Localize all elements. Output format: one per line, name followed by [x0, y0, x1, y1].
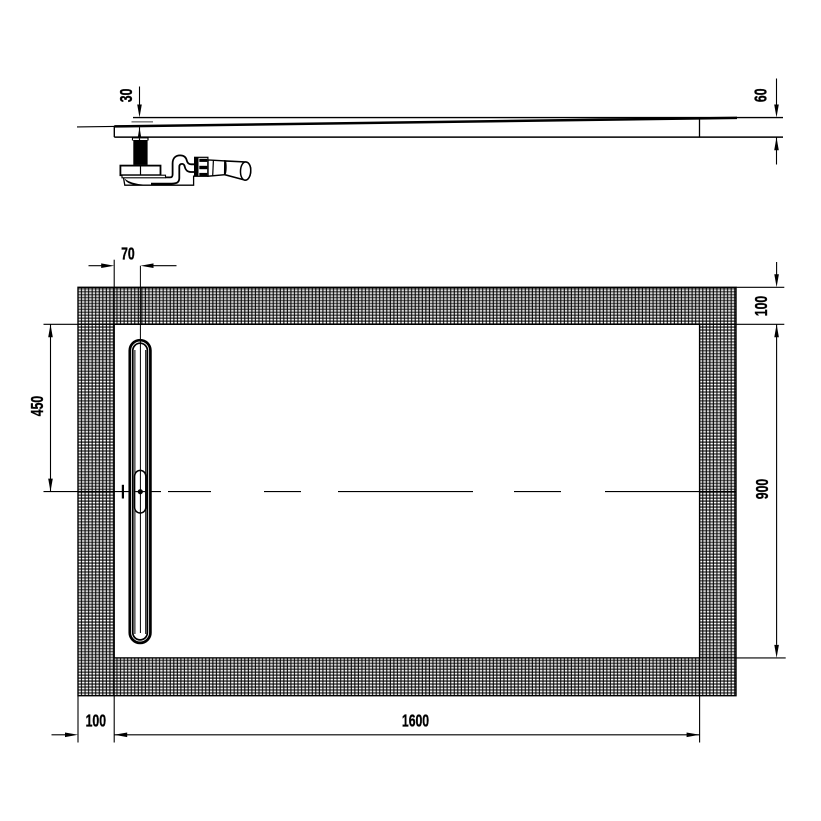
- svg-text:1600: 1600: [402, 711, 429, 731]
- svg-text:70: 70: [121, 244, 135, 264]
- svg-text:100: 100: [752, 296, 772, 316]
- svg-text:30: 30: [117, 89, 137, 103]
- svg-text:450: 450: [28, 396, 48, 416]
- svg-text:100: 100: [86, 711, 106, 731]
- svg-text:60: 60: [751, 88, 771, 102]
- svg-text:900: 900: [753, 479, 773, 499]
